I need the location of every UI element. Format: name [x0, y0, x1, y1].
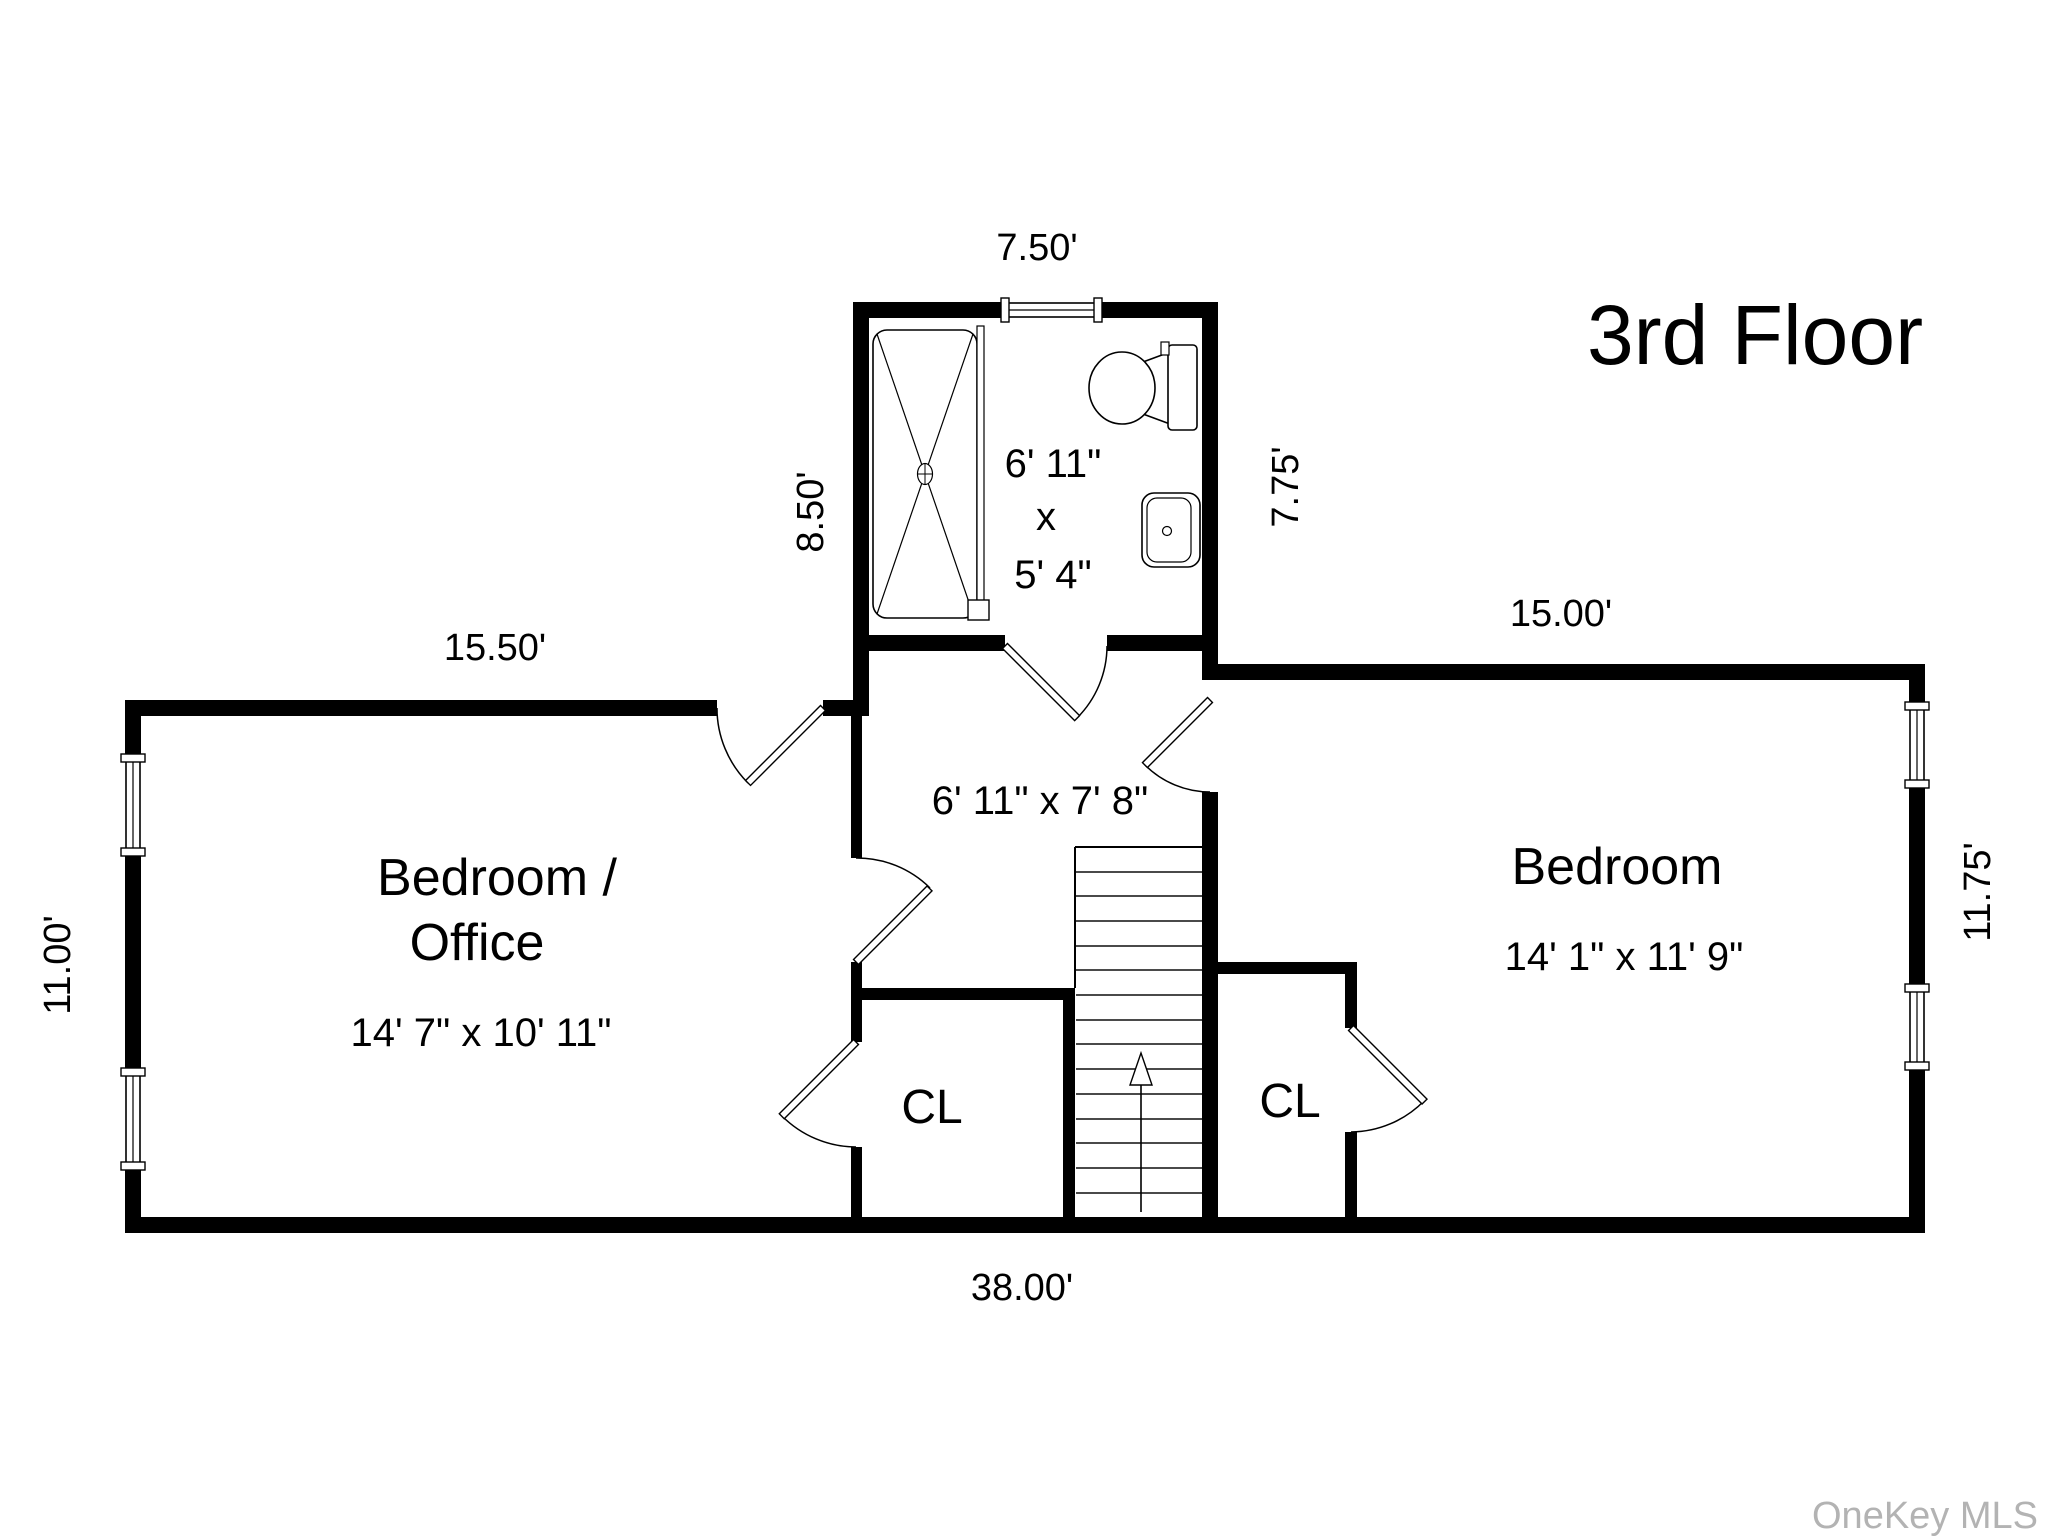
- bathroom-bottom-wall-right: [1107, 635, 1202, 651]
- floor-plan-page: 3rd Floor Bedroom / Office 14' 7" x 10' …: [0, 0, 2048, 1536]
- left-wall-seg-2: [125, 856, 141, 1072]
- dim-bathroom-right: 7.75': [1265, 446, 1307, 527]
- dim-left-side: 11.00': [37, 915, 79, 1015]
- hallway-dims: 6' 11" x 7' 8": [932, 779, 1148, 823]
- right-wall-seg-2: [1909, 788, 1925, 988]
- room-label-bedroom-office-line2: Office: [410, 914, 545, 972]
- shower-glass-panel: [977, 326, 984, 602]
- left-room-top-wall-stub: [823, 700, 869, 716]
- left-closet-right-wall: [1063, 988, 1075, 1217]
- bathroom-top-wall-left: [853, 302, 1005, 318]
- room-dims-bedroom-office: 14' 7" x 10' 11": [351, 1011, 612, 1055]
- room-dims-bedroom: 14' 1" x 11' 9": [1505, 935, 1744, 979]
- sink: [1142, 493, 1200, 567]
- bathroom-top-wall-right: [1098, 302, 1218, 318]
- left-closet-west-wall-lower: [851, 1147, 862, 1217]
- dim-left-wing-top: 15.50': [444, 627, 546, 669]
- bathroom-right-wall: [1202, 302, 1218, 680]
- bathroom-dim-sep: x: [1036, 495, 1056, 539]
- dim-right-wing-top: 15.00': [1510, 593, 1612, 635]
- bedroom-west-wall: [1202, 792, 1218, 1217]
- bathroom-dim-depth: 5' 4": [1014, 553, 1091, 597]
- dim-bathroom-top: 7.50': [996, 227, 1077, 269]
- right-closet-right-wall-lower: [1345, 1132, 1357, 1217]
- page-title: 3rd Floor: [1587, 288, 1923, 382]
- dim-right-side: 11.75': [1957, 842, 1999, 942]
- right-closet-top-wall: [1218, 962, 1357, 974]
- left-closet-top-wall: [851, 988, 1075, 1000]
- room-label-bedroom-office-line1: Bedroom /: [377, 849, 617, 907]
- right-wall-seg-3: [1909, 1070, 1925, 1233]
- sink-drain: [1163, 527, 1172, 536]
- room-label-bedroom: Bedroom: [1512, 838, 1723, 896]
- dim-bottom: 38.00': [971, 1267, 1073, 1309]
- closet-label-right: CL: [1259, 1075, 1320, 1128]
- bathroom-bottom-wall-left: [869, 635, 1005, 651]
- left-wall-seg-1: [125, 700, 141, 758]
- bathroom-dim-width: 6' 11": [1005, 442, 1102, 486]
- bedroom-top-wall: [1202, 664, 1925, 680]
- dim-bathroom-left: 8.50': [790, 471, 832, 552]
- bottom-wall: [125, 1217, 1925, 1233]
- hallway-west-wall-upper: [851, 716, 862, 858]
- bathroom-left-wall: [853, 302, 869, 716]
- floor-plan-canvas: 3rd Floor Bedroom / Office 14' 7" x 10' …: [0, 0, 2048, 1536]
- closet-label-left: CL: [901, 1081, 962, 1134]
- watermark: OneKey MLS: [1812, 1495, 2038, 1536]
- right-wall-seg-1: [1909, 664, 1925, 706]
- right-closet-right-wall-upper: [1345, 962, 1357, 1028]
- left-room-top-wall: [125, 700, 717, 716]
- hallway-west-wall-lower: [851, 962, 862, 1042]
